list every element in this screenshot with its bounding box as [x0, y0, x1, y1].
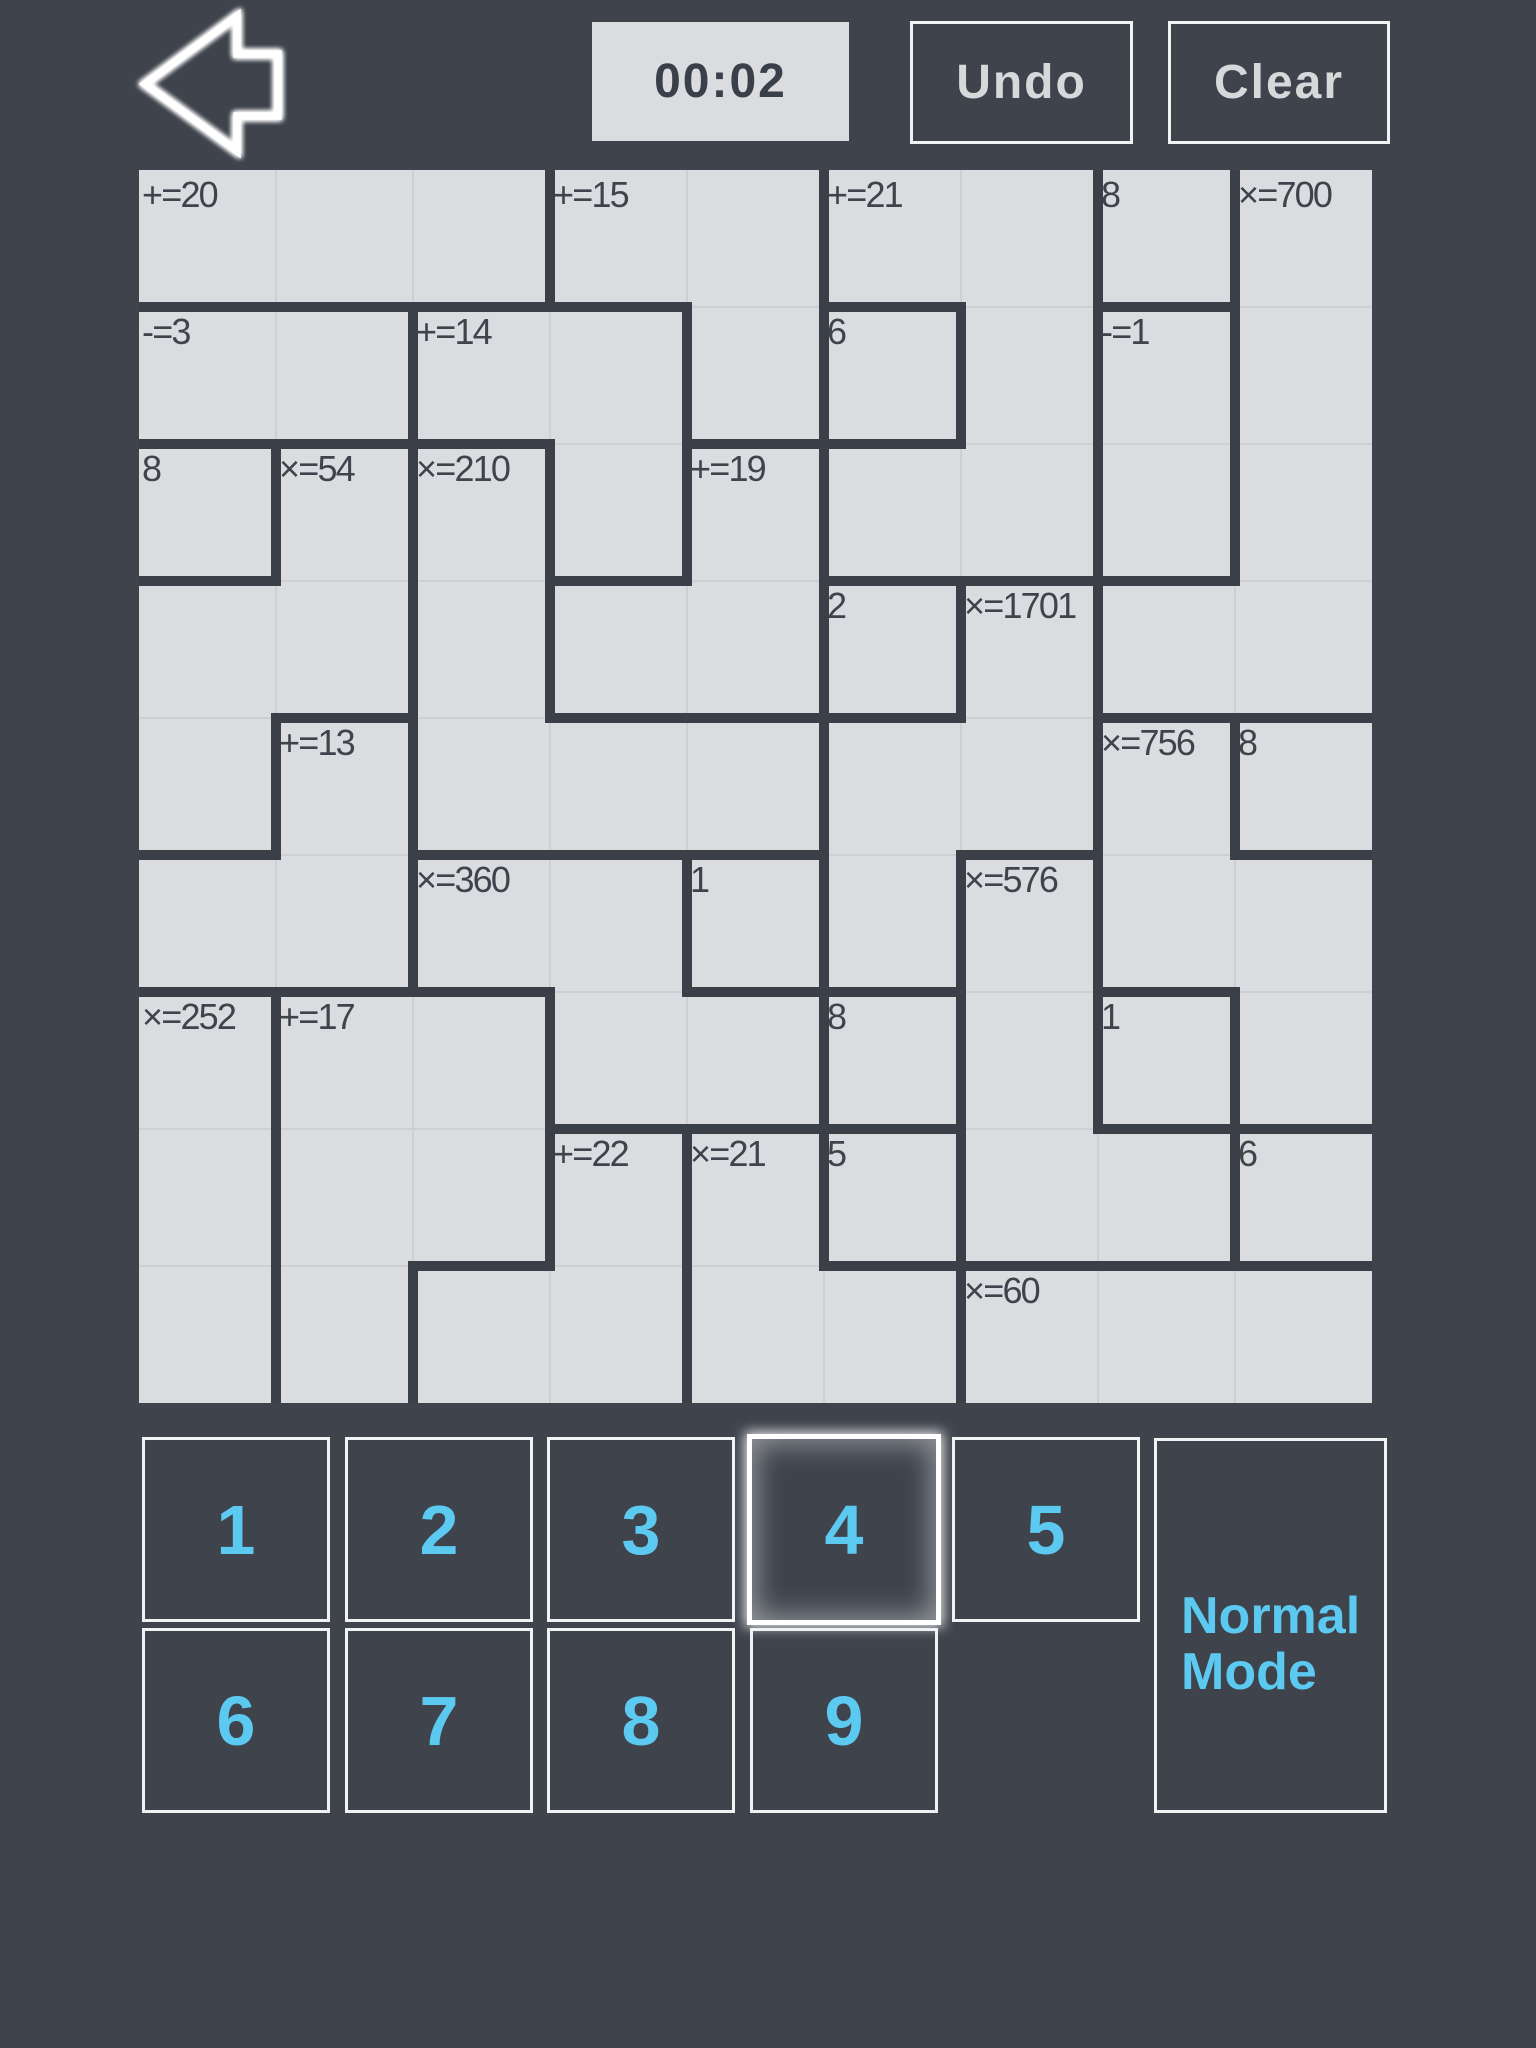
svg-text:+=13: +=13: [279, 722, 355, 763]
svg-text:+=17: +=17: [279, 996, 355, 1037]
svg-text:×=700: ×=700: [1238, 174, 1332, 215]
svg-text:×=60: ×=60: [964, 1270, 1040, 1311]
svg-text:8: 8: [827, 996, 846, 1037]
svg-text:8: 8: [1101, 174, 1120, 215]
svg-text:×=576: ×=576: [964, 859, 1058, 900]
svg-text:+=14: +=14: [416, 311, 492, 352]
svg-text:1: 1: [1101, 996, 1120, 1037]
svg-text:-=3: -=3: [142, 311, 190, 352]
svg-text:5: 5: [827, 1133, 846, 1174]
svg-text:+=20: +=20: [142, 174, 218, 215]
svg-text:6: 6: [827, 311, 846, 352]
svg-text:×=756: ×=756: [1101, 722, 1195, 763]
svg-text:-=1: -=1: [1101, 311, 1149, 352]
svg-text:2: 2: [827, 585, 846, 626]
svg-text:+=21: +=21: [827, 174, 903, 215]
svg-text:+=19: +=19: [690, 448, 766, 489]
svg-text:×=54: ×=54: [279, 448, 355, 489]
svg-text:+=22: +=22: [553, 1133, 629, 1174]
svg-text:8: 8: [1238, 722, 1257, 763]
svg-text:×=21: ×=21: [690, 1133, 766, 1174]
svg-text:×=360: ×=360: [416, 859, 510, 900]
svg-text:×=252: ×=252: [142, 996, 236, 1037]
svg-text:×=1701: ×=1701: [964, 585, 1076, 626]
svg-text:6: 6: [1238, 1133, 1257, 1174]
svg-text:+=15: +=15: [553, 174, 629, 215]
svg-text:×=210: ×=210: [416, 448, 510, 489]
svg-text:8: 8: [142, 448, 161, 489]
svg-text:1: 1: [690, 859, 709, 900]
